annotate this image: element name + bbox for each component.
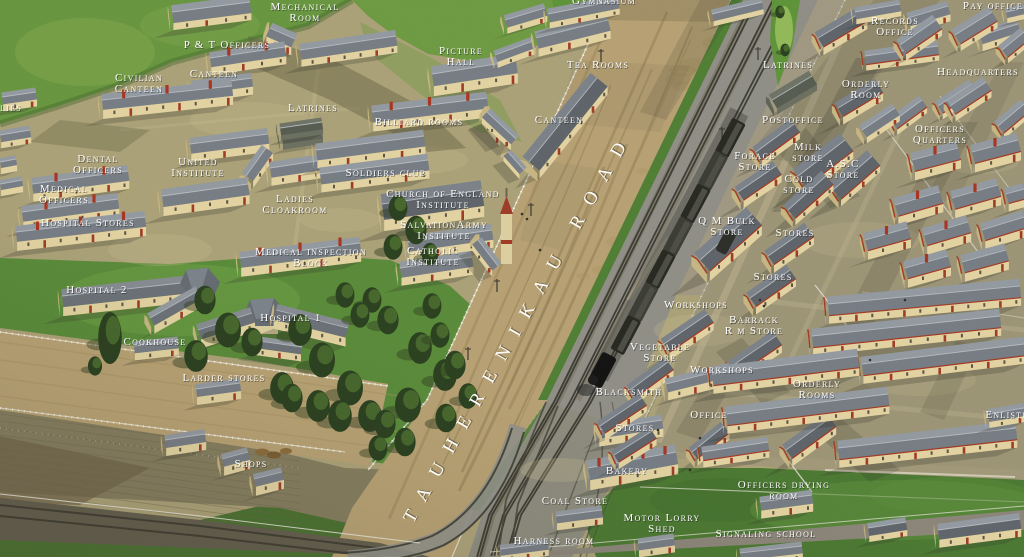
svg-text:Hospital 2: Hospital 2 [66, 284, 127, 296]
svg-text:Blacksmith: Blacksmith [595, 386, 662, 398]
svg-text:Room: Room [289, 12, 320, 24]
svg-text:room: room [769, 490, 798, 502]
svg-text:Institute: Institute [417, 230, 471, 242]
svg-text:Workshops: Workshops [690, 364, 754, 376]
svg-text:P & T Officers: P & T Officers [184, 39, 271, 51]
svg-text:Shops: Shops [234, 458, 267, 470]
svg-text:Cloakroom: Cloakroom [262, 204, 327, 216]
svg-text:Office: Office [690, 409, 728, 421]
svg-text:Postoffice: Postoffice [762, 114, 824, 126]
svg-text:Rooms: Rooms [799, 389, 836, 401]
svg-text:Larder stores: Larder stores [182, 372, 265, 384]
svg-text:Store: Store [738, 161, 771, 173]
svg-text:Officers: Officers [73, 164, 123, 176]
svg-text:Store: Store [710, 226, 743, 238]
svg-text:Soldiers club: Soldiers club [346, 167, 427, 179]
svg-text:Shed: Shed [648, 523, 676, 535]
svg-text:Pay office: Pay office [963, 0, 1023, 12]
svg-text:Headquarters: Headquarters [937, 66, 1019, 78]
svg-text:Workshops: Workshops [664, 299, 728, 311]
svg-text:Signaling school: Signaling school [716, 528, 817, 540]
svg-text:Office: Office [876, 26, 914, 38]
svg-text:Gymnasium: Gymnasium [572, 0, 636, 7]
svg-text:Institute: Institute [406, 256, 460, 268]
svg-text:Canteen: Canteen [115, 83, 163, 95]
svg-text:Tea Rooms: Tea Rooms [567, 59, 629, 71]
svg-text:store: store [792, 152, 824, 164]
svg-text:lies: lies [0, 102, 22, 114]
svg-text:Quarters: Quarters [913, 134, 967, 146]
svg-text:Stores: Stores [753, 271, 792, 283]
svg-text:Room: Room [850, 89, 881, 101]
svg-text:Bakery: Bakery [606, 465, 648, 477]
svg-text:Enliste: Enliste [985, 409, 1024, 421]
svg-text:Stores: Stores [615, 422, 654, 434]
svg-text:Hospital Stores: Hospital Stores [41, 217, 135, 229]
svg-text:Canteen: Canteen [190, 68, 238, 80]
svg-text:Store: Store [826, 169, 859, 181]
svg-text:R m Store: R m Store [725, 325, 784, 337]
svg-text:Stores: Stores [775, 227, 814, 239]
svg-text:Latrines: Latrines [288, 102, 338, 114]
svg-text:Cookhouse: Cookhouse [123, 336, 186, 348]
svg-text:store: store [783, 184, 815, 196]
svg-text:Institute: Institute [416, 199, 470, 211]
svg-text:Harness room: Harness room [514, 535, 595, 547]
svg-text:Billiard rooms: Billiard rooms [375, 116, 464, 128]
svg-text:Officers: Officers [39, 194, 89, 206]
svg-text:Hall: Hall [447, 56, 476, 68]
svg-text:Store: Store [643, 352, 676, 364]
svg-text:Block: Block [293, 257, 329, 269]
svg-text:Hospital 1: Hospital 1 [260, 312, 321, 324]
svg-text:Institute: Institute [171, 167, 225, 179]
svg-text:Latrines: Latrines [763, 59, 813, 71]
svg-text:Canteen: Canteen [535, 114, 583, 126]
svg-text:Coal Store: Coal Store [542, 495, 608, 507]
